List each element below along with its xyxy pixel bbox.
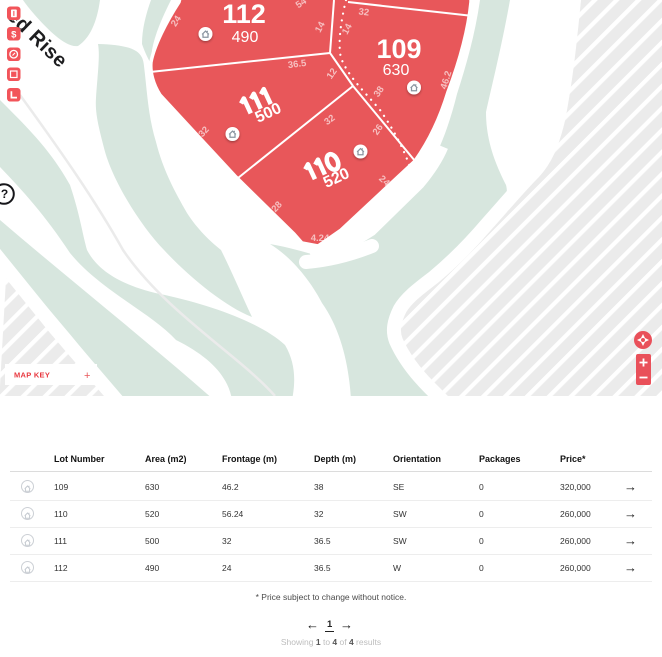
svg-text:32: 32 (358, 6, 370, 18)
svg-text:630: 630 (383, 62, 410, 79)
svg-text:?: ? (1, 187, 8, 201)
svg-text:112: 112 (222, 0, 266, 29)
svg-text:109: 109 (376, 34, 421, 64)
svg-text:4.24: 4.24 (311, 233, 330, 244)
svg-text:36.5: 36.5 (287, 58, 307, 71)
svg-text:490: 490 (232, 29, 259, 46)
svg-text:MAP KEY: MAP KEY (14, 371, 50, 380)
svg-text:+: + (84, 370, 90, 382)
svg-text:$: $ (11, 29, 17, 40)
